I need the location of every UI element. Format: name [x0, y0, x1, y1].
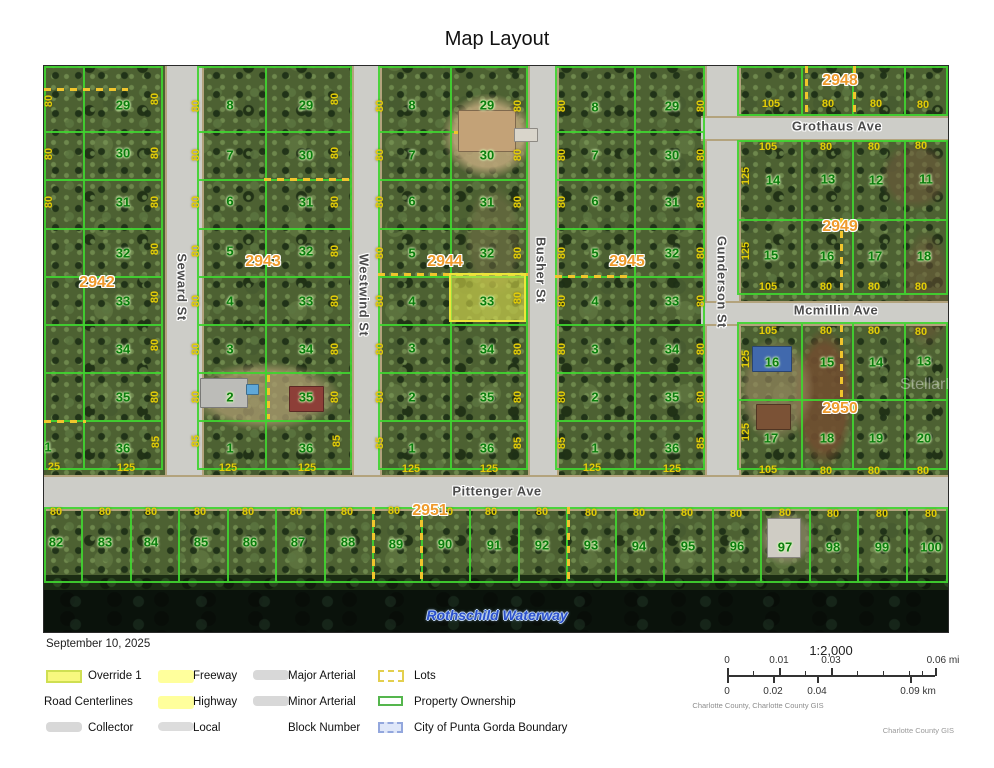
- scale-tick-mi: [831, 668, 833, 676]
- waterway-label: Rothschild Waterway: [426, 607, 567, 623]
- lot-number: 20: [917, 431, 931, 446]
- scale-tick-km: [773, 676, 775, 683]
- lot-dimension: 105: [759, 281, 777, 293]
- lot-dimension: 80: [820, 141, 832, 153]
- lot-number: 3: [226, 342, 233, 357]
- lot-dimension: 80: [536, 506, 548, 518]
- lot-number: 3: [408, 341, 415, 356]
- lot-number: 7: [226, 148, 233, 163]
- lot-dimension: 85: [150, 436, 162, 448]
- house-tan: [458, 110, 516, 152]
- gis-credit: Charlotte County GIS: [844, 726, 954, 735]
- lot-dimension: 80: [556, 391, 568, 403]
- lot-dimension: 80: [512, 196, 524, 208]
- parcel-line-h: [557, 228, 703, 230]
- lot-dimension: 125: [740, 167, 752, 185]
- lot-dimension: 80: [876, 508, 888, 520]
- lot-number: 1: [226, 441, 233, 456]
- block-number: 2950: [822, 400, 858, 418]
- parcel-line-v: [857, 509, 859, 581]
- scale-tick-minor: [909, 671, 910, 676]
- lot-dimension: 85: [374, 437, 386, 449]
- lot-number: 6: [591, 194, 598, 209]
- lot-dimension: 80: [329, 93, 341, 105]
- lot-number: 5: [226, 244, 233, 259]
- lot-dashed-line: [267, 375, 270, 419]
- lot-number: 100: [920, 540, 942, 555]
- legend-label: Minor Arterial: [288, 696, 356, 708]
- parcel-line-v: [801, 142, 803, 293]
- lot-dimension: 80: [870, 98, 882, 110]
- lot-dimension: 80: [695, 149, 707, 161]
- parcel-line-v: [130, 509, 132, 581]
- lot-dimension: 80: [242, 506, 254, 518]
- lot-number: 31: [480, 195, 494, 210]
- parcel-line-v: [469, 509, 471, 581]
- lot-dashed-line: [805, 66, 808, 116]
- lot-number: 32: [116, 246, 130, 261]
- block-number: 2944: [427, 253, 463, 271]
- lot-dimension: 80: [145, 506, 157, 518]
- parcel-line-v: [81, 509, 83, 581]
- parcel-line-h: [46, 179, 161, 181]
- lot-number: 97: [778, 540, 792, 555]
- driveway: [514, 128, 538, 142]
- lot-number: 15: [820, 355, 834, 370]
- lot-number: 95: [681, 539, 695, 554]
- lot-number: 36: [299, 441, 313, 456]
- lot-dimension: 85: [331, 435, 343, 447]
- parcel-line-h: [380, 228, 526, 230]
- lot-dimension: 80: [556, 295, 568, 307]
- lot-number: 14: [869, 355, 883, 370]
- lot-dashed-line: [264, 178, 352, 181]
- scale-tick-minor: [805, 671, 806, 676]
- lot-dimension: 80: [915, 281, 927, 293]
- lot-number: 3: [591, 342, 598, 357]
- lot-dimension: 85: [512, 437, 524, 449]
- lot-number: 17: [764, 431, 778, 446]
- lot-dimension: 80: [388, 505, 400, 517]
- lot-dimension: 80: [194, 506, 206, 518]
- lot-number: 4: [591, 294, 598, 309]
- legend-swatch-gray: [253, 696, 289, 706]
- parcel-line-h: [46, 131, 161, 133]
- lot-number: 98: [826, 540, 840, 555]
- lot-dimension: 125: [740, 350, 752, 368]
- legend-swatch-lightgray: [158, 722, 194, 731]
- parcel-line-v: [852, 324, 854, 468]
- scale-label-km: 0.02: [763, 686, 782, 697]
- lot-number: 84: [144, 535, 158, 550]
- lot-dashed-line: [555, 275, 633, 278]
- legend-label: Major Arterial: [288, 670, 356, 682]
- lot-dimension: 80: [556, 196, 568, 208]
- parcel-line-v: [663, 509, 665, 581]
- lot-dimension: 80: [695, 247, 707, 259]
- lot-dimension: 80: [485, 506, 497, 518]
- lot-dimension: 80: [374, 247, 386, 259]
- lot-dimension: 80: [512, 149, 524, 161]
- map-attribution: Charlotte County, Charlotte County GIS: [658, 701, 858, 710]
- lot-number: 2: [408, 390, 415, 405]
- scale-tick-km: [727, 676, 729, 683]
- lot-number: 2: [226, 390, 233, 405]
- lot-dimension: 80: [329, 295, 341, 307]
- map-canvas: Seward StWestwind StBusher StGunderson S…: [44, 66, 948, 632]
- street-label-mcmillin-ave: Mcmillin Ave: [794, 303, 879, 318]
- parcel-line-v: [801, 324, 803, 468]
- lot-dimension: 125: [402, 463, 420, 475]
- lot-dimension: 80: [329, 343, 341, 355]
- lot-number: 5: [408, 246, 415, 261]
- scale-tick-mi: [727, 668, 729, 676]
- lot-number: 13: [917, 354, 931, 369]
- lot-number: 36: [665, 441, 679, 456]
- parcel-line-h: [557, 179, 703, 181]
- lot-number: 32: [299, 244, 313, 259]
- scale-label-mi: 0.03: [821, 655, 840, 666]
- lot-dimension: 80: [868, 465, 880, 477]
- scale-label-km: 0.09 km: [900, 686, 936, 697]
- legend-label: Road Centerlines: [44, 696, 133, 708]
- lot-number: 16: [820, 249, 834, 264]
- lot-dimension: 80: [329, 245, 341, 257]
- scale-tick-minor: [922, 671, 923, 676]
- lot-dimension: 80: [820, 325, 832, 337]
- house-gray: [200, 378, 248, 408]
- lot-dashed-line: [567, 507, 570, 583]
- lot-number: 16: [765, 355, 779, 370]
- scale-label-km: 0: [724, 686, 730, 697]
- lot-number: 8: [226, 98, 233, 113]
- lot-dimension: 80: [868, 281, 880, 293]
- legend-label: Collector: [88, 722, 133, 734]
- lot-number: 15: [764, 248, 778, 263]
- lot-number: 30: [480, 148, 494, 163]
- lot-number: 34: [299, 342, 313, 357]
- parcel-line-v: [904, 142, 906, 293]
- block-number: 2942: [79, 274, 115, 292]
- lot-number: 35: [116, 390, 130, 405]
- block-number: 2949: [822, 218, 858, 236]
- lot-dimension: 80: [50, 506, 62, 518]
- scale-label-km: 0.04: [807, 686, 826, 697]
- lot-number: 83: [98, 535, 112, 550]
- lot-dimension: 80: [512, 247, 524, 259]
- lot-dimension: 80: [374, 391, 386, 403]
- street-label-seward-st: Seward St: [175, 253, 190, 320]
- lot-number: 94: [632, 539, 646, 554]
- legend-swatch-gray: [46, 722, 82, 732]
- lot-dimension: 80: [917, 465, 929, 477]
- lot-number: 32: [665, 246, 679, 261]
- lot-dimension: 105: [759, 464, 777, 476]
- lot-number: 6: [226, 194, 233, 209]
- lot-dimension: 125: [740, 423, 752, 441]
- lot-dimension: 80: [512, 292, 524, 304]
- lot-dimension: 80: [556, 343, 568, 355]
- lot-dimension: 125: [219, 462, 237, 474]
- lot-number: 19: [869, 431, 883, 446]
- parcel-line-v: [809, 509, 811, 581]
- lot-number: 32: [480, 246, 494, 261]
- map-layout-page: Map Layout Seward StWestwind StBusher St…: [0, 0, 994, 768]
- legend-label: Override 1: [88, 670, 142, 682]
- house-brown: [756, 404, 791, 430]
- lot-dimension: 80: [820, 281, 832, 293]
- pool: [246, 384, 259, 395]
- lot-dimension: 80: [190, 391, 202, 403]
- lot-dimension: 80: [868, 141, 880, 153]
- legend-swatch-override: [46, 670, 82, 683]
- street-label-pittenger-ave: Pittenger Ave: [452, 484, 541, 499]
- block-number: 2943: [245, 253, 281, 271]
- parcel-line-h: [199, 228, 350, 230]
- lot-number: 31: [116, 195, 130, 210]
- scale-label-mi: 0.01: [769, 655, 788, 666]
- legend-swatch-city: [378, 722, 403, 733]
- lot-number: 87: [291, 535, 305, 550]
- lot-number: 86: [243, 535, 257, 550]
- lot-number: 29: [665, 99, 679, 114]
- lot-number: 18: [820, 431, 834, 446]
- lot-dimension: 80: [633, 507, 645, 519]
- street-label-westwind-st: Westwind St: [357, 254, 372, 337]
- lot-dimension: 80: [695, 196, 707, 208]
- block-number: 2948: [822, 72, 858, 90]
- map-date: September 10, 2025: [46, 638, 150, 650]
- lot-dimension: 80: [44, 196, 55, 208]
- lot-dashed-line: [372, 507, 375, 583]
- lot-number: 82: [49, 535, 63, 550]
- lot-number: 1: [591, 441, 598, 456]
- scale-tick-minor: [883, 671, 884, 676]
- lot-number: 18: [917, 249, 931, 264]
- lot-dimension: 80: [917, 99, 929, 111]
- lot-dimension: 80: [190, 343, 202, 355]
- lot-number: 36: [116, 441, 130, 456]
- lot-dimension: 105: [759, 325, 777, 337]
- lot-dimension: 80: [329, 391, 341, 403]
- lot-dimension: 80: [44, 95, 55, 107]
- lot-number: 17: [868, 249, 882, 264]
- lot-dimension: 80: [341, 506, 353, 518]
- lot-number: 13: [821, 172, 835, 187]
- parcel-grid: [44, 66, 163, 470]
- lot-number: 2: [591, 390, 598, 405]
- lot-dimension: 80: [512, 100, 524, 112]
- lot-number: 6: [408, 194, 415, 209]
- lot-number: 92: [535, 538, 549, 553]
- lot-number: 93: [584, 538, 598, 553]
- legend-swatch-yellow: [158, 696, 194, 709]
- page-title: Map Layout: [0, 28, 994, 51]
- parcel-line-h: [199, 372, 350, 374]
- scale-label-mi: 0.06 mi: [927, 655, 960, 666]
- scale-tick-mi: [779, 668, 781, 676]
- legend-label: Block Number: [288, 722, 360, 734]
- legend-label: Lots: [414, 670, 436, 682]
- lot-number: 29: [299, 98, 313, 113]
- lot-dimension: 80: [149, 339, 161, 351]
- lot-number: 33: [665, 294, 679, 309]
- parcel-line-h: [557, 324, 703, 326]
- legend-label: Highway: [193, 696, 237, 708]
- lot-dimension: 80: [149, 196, 161, 208]
- lot-dimension: 25: [48, 461, 60, 473]
- lot-dimension: 80: [915, 140, 927, 152]
- lot-number: 88: [341, 535, 355, 550]
- legend-swatch-yellow: [158, 670, 194, 683]
- lot-dimension: 125: [663, 463, 681, 475]
- lot-dimension: 80: [730, 508, 742, 520]
- lot-dashed-line: [840, 325, 843, 398]
- lot-dimension: 80: [329, 147, 341, 159]
- lot-dimension: 125: [480, 463, 498, 475]
- lot-dimension: 80: [149, 93, 161, 105]
- scale-tick-minor: [857, 671, 858, 676]
- lot-dimension: 80: [149, 147, 161, 159]
- lot-dimension: 80: [512, 391, 524, 403]
- parcel-line-h: [46, 324, 161, 326]
- parcel-line-h: [557, 131, 703, 133]
- lot-number: 7: [591, 148, 598, 163]
- lot-number: 35: [665, 390, 679, 405]
- lot-number: 85: [194, 535, 208, 550]
- lot-dimension: 80: [290, 506, 302, 518]
- parcel-line-h: [46, 228, 161, 230]
- lot-number: 4: [408, 294, 415, 309]
- lot-number: 8: [408, 98, 415, 113]
- lot-dimension: 125: [740, 242, 752, 260]
- legend-label: Property Ownership: [414, 696, 516, 708]
- lot-dimension: 80: [556, 247, 568, 259]
- parcel-line-v: [227, 509, 229, 581]
- parcel-line-h: [557, 420, 703, 422]
- scale-label-mi: 0: [724, 655, 730, 666]
- lot-number: 90: [438, 537, 452, 552]
- parcel-line-h: [380, 420, 526, 422]
- lot-number: 31: [665, 195, 679, 210]
- lot-number: 35: [299, 390, 313, 405]
- lot-dimension: 80: [190, 295, 202, 307]
- lot-number: 29: [116, 98, 130, 113]
- lot-dimension: 80: [827, 508, 839, 520]
- lot-dimension: 80: [99, 506, 111, 518]
- parcel-line-v: [904, 324, 906, 468]
- lot-dashed-line: [44, 88, 128, 91]
- lot-dimension: 80: [512, 343, 524, 355]
- lot-dimension: 80: [915, 326, 927, 338]
- lot-number: 89: [389, 537, 403, 552]
- legend-label: Freeway: [193, 670, 237, 682]
- parcel-line-v: [615, 509, 617, 581]
- lot-number: 30: [665, 148, 679, 163]
- lot-dimension: 105: [759, 141, 777, 153]
- legend-label: City of Punta Gorda Boundary: [414, 722, 567, 734]
- parcel-line-v: [904, 68, 906, 114]
- lot-dimension: 80: [695, 343, 707, 355]
- parcel-line-v: [275, 509, 277, 581]
- scale-tick-km: [817, 676, 819, 683]
- lot-dimension: 80: [695, 100, 707, 112]
- parcel-line-h: [380, 324, 526, 326]
- lot-dimension: 80: [681, 507, 693, 519]
- lot-number: 31: [299, 195, 313, 210]
- parcel-line-h: [380, 372, 526, 374]
- lot-dimension: 80: [779, 507, 791, 519]
- lot-number: 12: [869, 173, 883, 188]
- lot-number: 30: [299, 148, 313, 163]
- parcel-line-v: [801, 68, 803, 114]
- lot-number: 1: [408, 441, 415, 456]
- scale-tick-km: [910, 676, 912, 683]
- street-label-grothaus-ave: Grothaus Ave: [792, 119, 882, 134]
- lot-number: 91: [487, 538, 501, 553]
- legend-label: Local: [193, 722, 221, 734]
- lot-dimension: 80: [556, 149, 568, 161]
- lot-dimension: 80: [820, 465, 832, 477]
- lot-dimension: 125: [298, 462, 316, 474]
- block-number: 2951: [412, 502, 448, 520]
- lot-dimension: 80: [868, 325, 880, 337]
- lot-dimension: 80: [585, 507, 597, 519]
- lot-number: 34: [116, 342, 130, 357]
- parcel-line-v: [760, 509, 762, 581]
- lot-number: 33: [116, 294, 130, 309]
- lot-number: 34: [665, 342, 679, 357]
- lot-number: 36: [480, 441, 494, 456]
- lot-number: 33: [299, 294, 313, 309]
- block-number: 2945: [609, 253, 645, 271]
- lot-dimension: 80: [190, 196, 202, 208]
- lot-number: 34: [480, 342, 494, 357]
- lot-number: 99: [875, 540, 889, 555]
- lot-dimension: 80: [695, 295, 707, 307]
- lot-dimension: 80: [374, 196, 386, 208]
- parcel-line-v: [83, 68, 85, 468]
- lot-dimension: 80: [190, 100, 202, 112]
- lot-number: 33: [480, 294, 494, 309]
- lot-dimension: 80: [695, 391, 707, 403]
- lot-dimension: 125: [117, 462, 135, 474]
- lot-dimension: 85: [695, 437, 707, 449]
- lot-dimension: 80: [149, 243, 161, 255]
- lot-number: 96: [730, 539, 744, 554]
- scale-tick-mi: [935, 668, 937, 676]
- lot-dimension: 80: [190, 245, 202, 257]
- lot-number: 14: [766, 173, 780, 188]
- parcel-line-v: [712, 509, 714, 581]
- lot-dimension: 80: [374, 149, 386, 161]
- lot-dimension: 80: [190, 149, 202, 161]
- lot-dimension: 80: [374, 343, 386, 355]
- lot-dashed-line: [44, 420, 86, 423]
- parcel-line-h: [380, 179, 526, 181]
- parcel-line-v: [324, 509, 326, 581]
- scale-tick-minor: [753, 671, 754, 676]
- street-label-gunderson-st: Gunderson St: [715, 236, 730, 328]
- lot-number: 1: [44, 440, 51, 455]
- parcel-line-h: [199, 131, 350, 133]
- lot-number: 35: [480, 390, 494, 405]
- parcel-line-v: [906, 509, 908, 581]
- street-label-busher-st: Busher St: [534, 237, 549, 303]
- lot-number: 8: [591, 100, 598, 115]
- parcel-line-h: [199, 276, 350, 278]
- legend-swatch-lots: [378, 670, 404, 682]
